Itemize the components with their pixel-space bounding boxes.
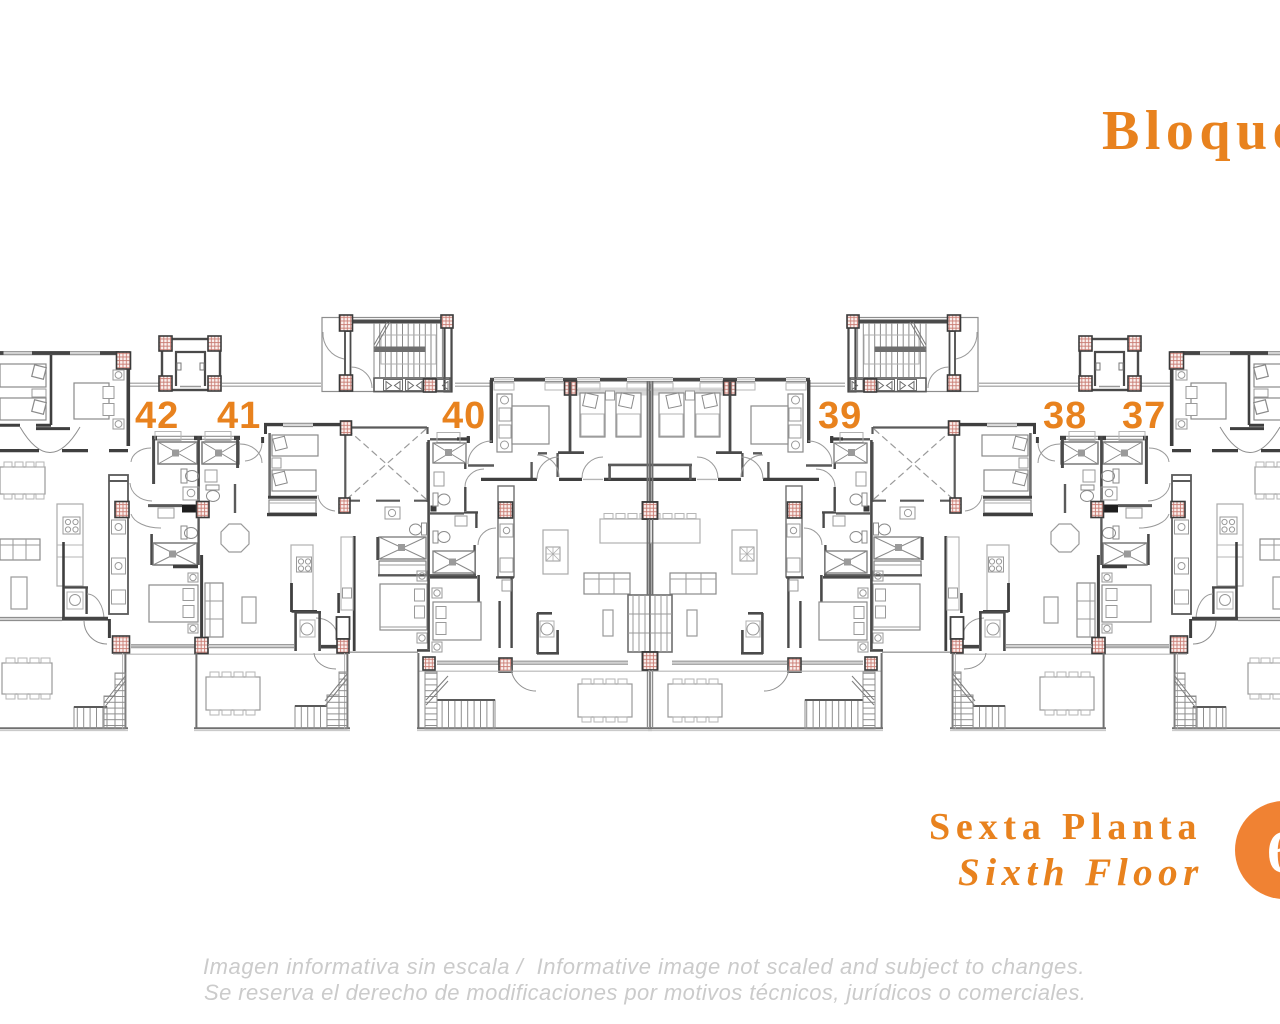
- svg-text:Sixth Floor: Sixth Floor: [958, 851, 1204, 894]
- svg-text:39: 39: [818, 395, 862, 437]
- svg-text:37: 37: [1122, 395, 1166, 437]
- svg-text:Sexta Planta: Sexta Planta: [929, 806, 1202, 848]
- svg-text:Se reserva el derecho de modif: Se reserva el derecho de modificaciones …: [204, 980, 1086, 1005]
- svg-text:38: 38: [1043, 395, 1087, 437]
- svg-text:42: 42: [135, 395, 179, 437]
- svg-text:6: 6: [1267, 819, 1280, 885]
- svg-text:Bloque 6: Bloque 6: [1102, 100, 1280, 162]
- svg-text:41: 41: [217, 395, 261, 437]
- svg-text:Imagen informativa sin escala: Imagen informativa sin escala / Informat…: [203, 954, 1085, 979]
- svg-text:40: 40: [442, 395, 486, 437]
